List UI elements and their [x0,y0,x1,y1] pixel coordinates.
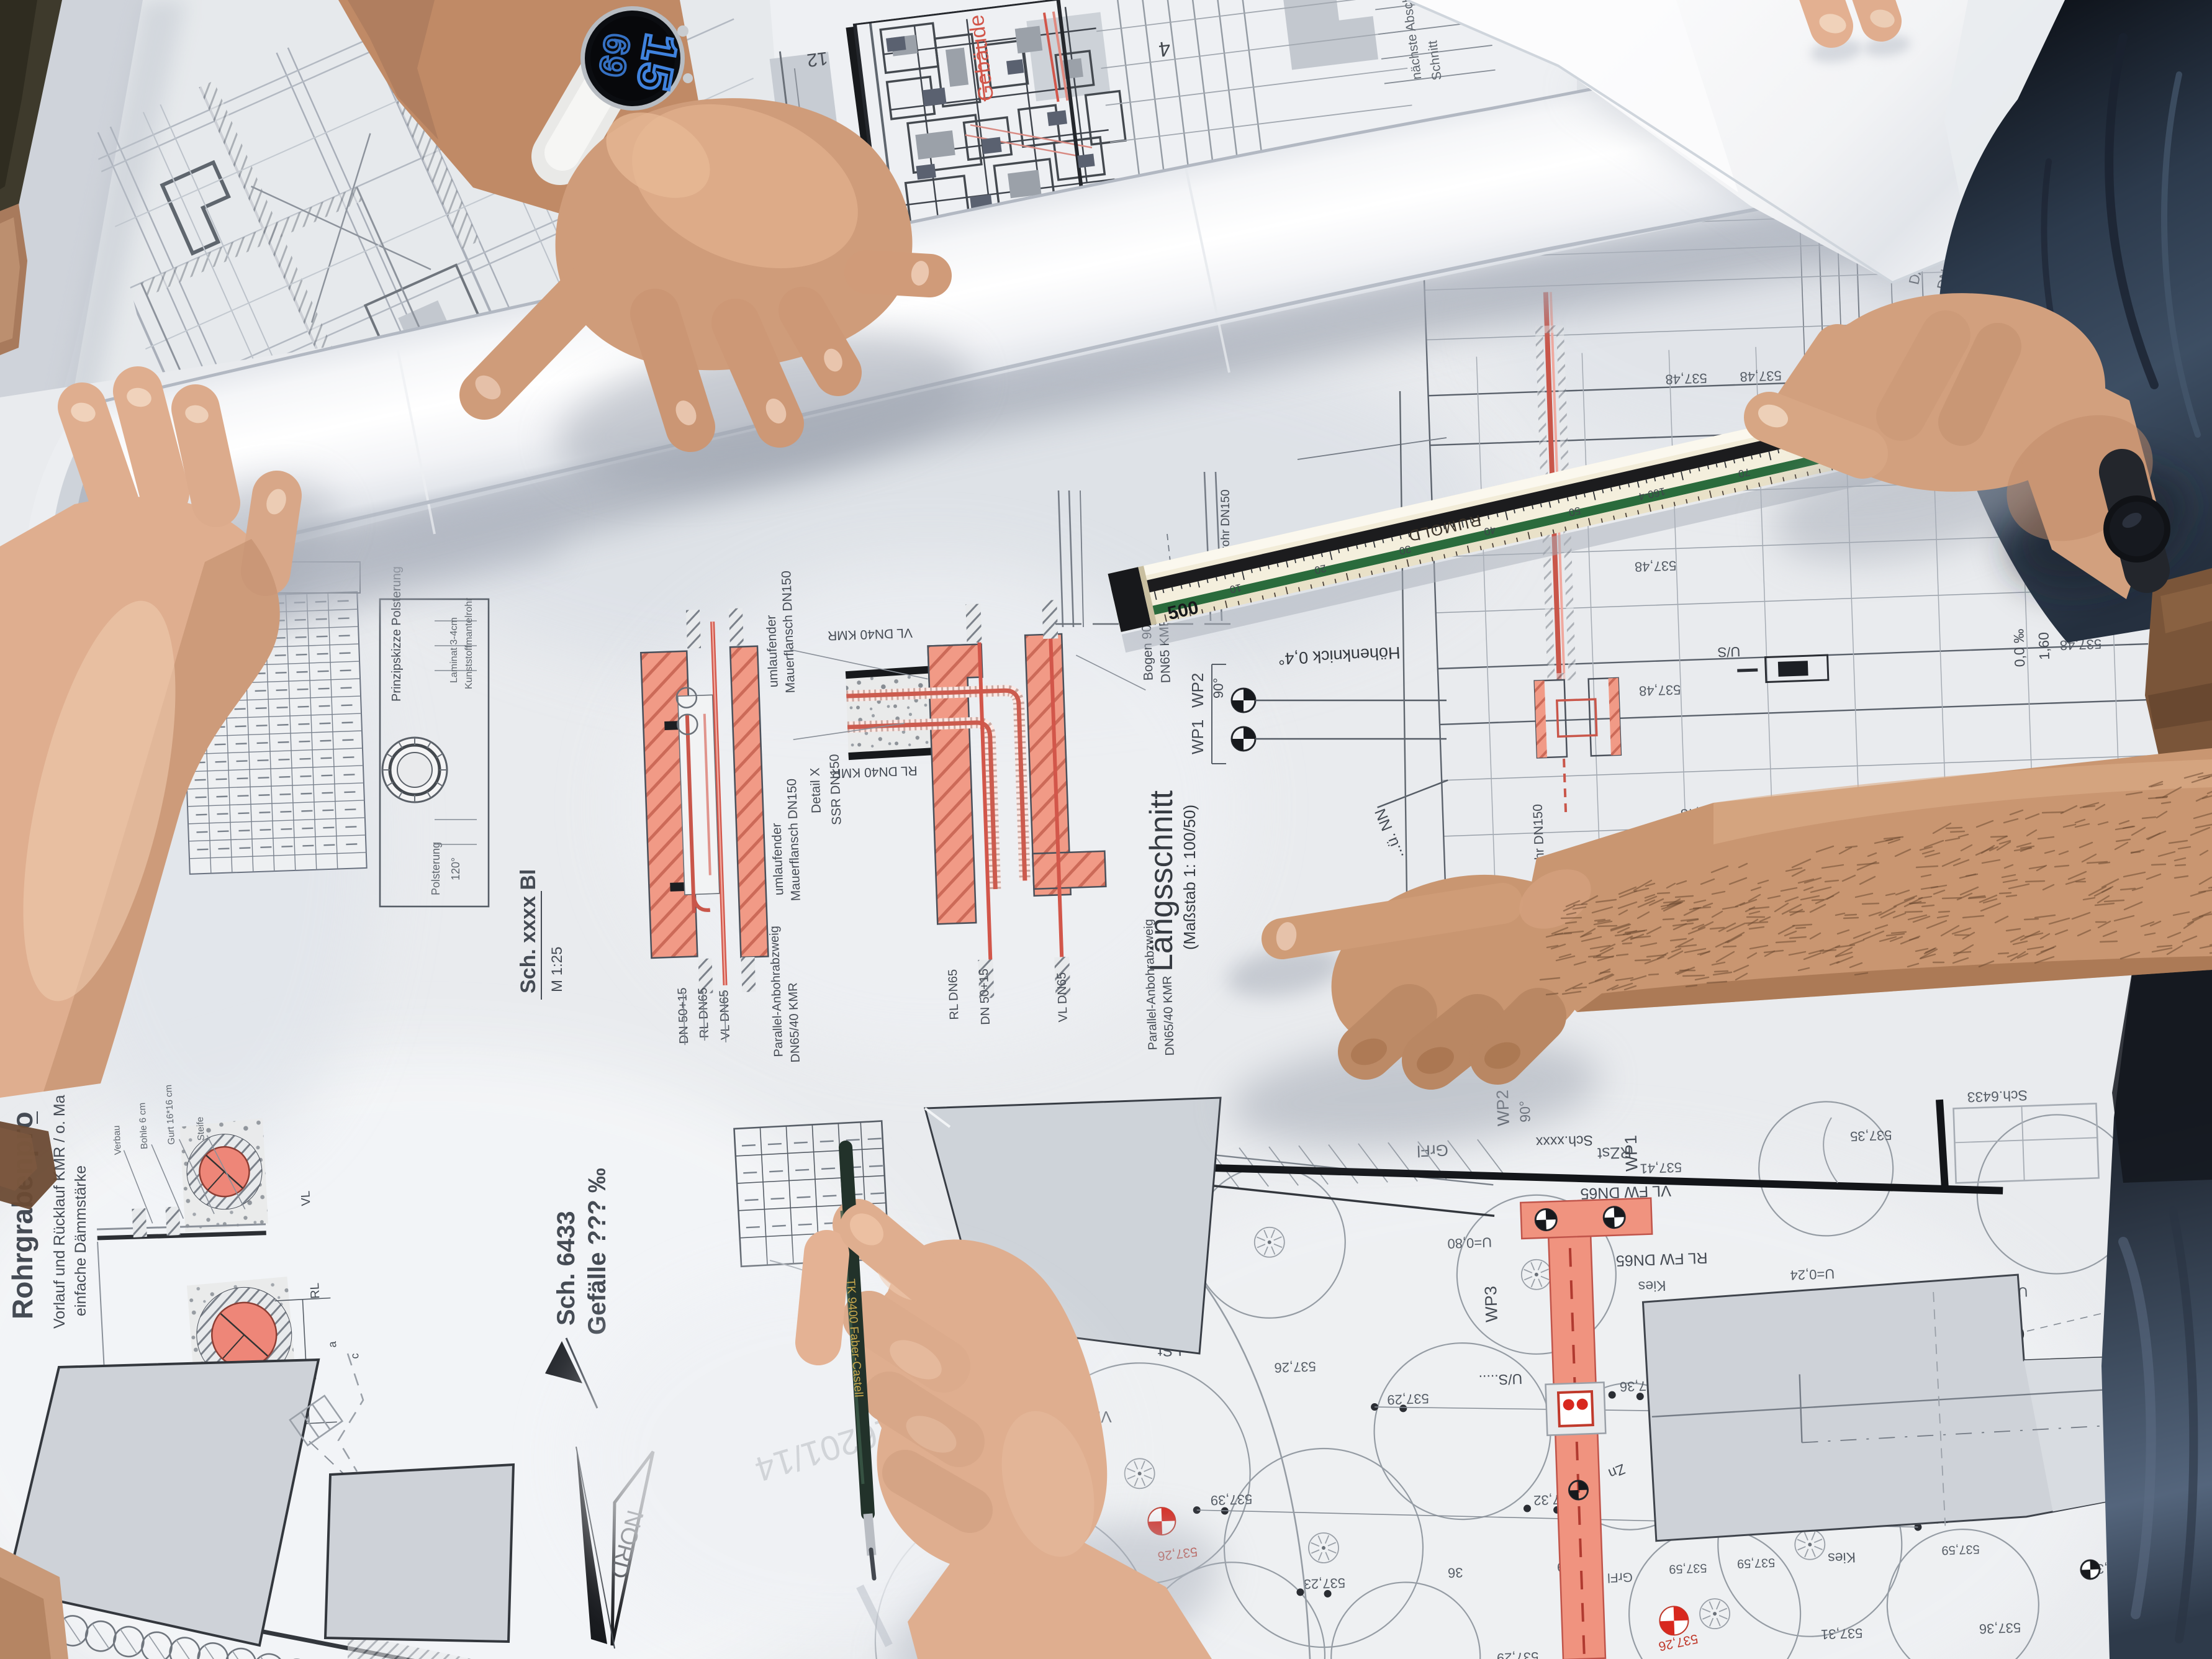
svg-text:umlaufender: umlaufender [769,823,786,895]
svg-text:Polsterung: Polsterung [430,842,442,895]
svg-text:537,29: 537,29 [1387,1391,1429,1408]
svg-text:WP3: WP3 [1481,1286,1501,1323]
svg-text:537,41: 537,41 [1640,1160,1682,1177]
svg-text:DN65/40 KMR: DN65/40 KMR [1160,975,1176,1056]
svg-text:Steife: Steife [195,1116,207,1141]
svg-text:Kunststoffmantelrohr: Kunststoffmantelrohr [464,597,474,689]
svg-text:Laminat 3-4cm: Laminat 3-4cm [449,617,459,683]
svg-text:69: 69 [587,29,636,81]
svg-text:537,35: 537,35 [1850,1128,1892,1144]
svg-text:DN 50+15: DN 50+15 [977,969,993,1025]
svg-text:0,0 ‰: 0,0 ‰ [2010,628,2028,667]
svg-text:RL DN65: RL DN65 [946,969,962,1020]
svg-text:GrFl: GrFl [1607,1570,1633,1584]
svg-text:Längsschnitt: Längsschnitt [1144,790,1180,972]
svg-text:Detail X: Detail X [808,767,824,813]
svg-text:90°: 90° [1211,678,1226,698]
svg-text:537,39: 537,39 [1210,1491,1252,1508]
svg-text:WP1: WP1 [1188,720,1207,754]
svg-text:WP2: WP2 [1188,673,1207,708]
svg-text:537,23: 537,23 [1303,1575,1345,1592]
svg-text:U=0,24: U=0,24 [1790,1266,1835,1283]
svg-text:Sch.6433: Sch.6433 [1967,1087,2028,1105]
svg-text:Verbau: Verbau [111,1125,123,1155]
svg-text:537,48: 537,48 [1635,558,1677,574]
svg-text:Vorlauf und Rücklauf KMR / o.: Vorlauf und Rücklauf KMR / o. Ma [51,1095,68,1329]
svg-text:U/S.....: U/S..... [1478,1371,1522,1388]
svg-text:537,31: 537,31 [1821,1625,1863,1642]
svg-text:120°: 120° [449,857,462,880]
svg-text:Sch. 6433: Sch. 6433 [553,1211,580,1326]
svg-text:U=0,80: U=0,80 [1447,1234,1492,1251]
svg-text:36: 36 [1448,1565,1463,1581]
svg-text:VL FW DN65: VL FW DN65 [1580,1182,1671,1202]
svg-text:DN65/40 KMR: DN65/40 KMR [786,982,802,1063]
svg-text:SSR DN150: SSR DN150 [828,754,844,825]
svg-text:537,48: 537,48 [1665,371,1707,387]
svg-text:537,59: 537,59 [1941,1542,1980,1557]
svg-text:1,60: 1,60 [2035,632,2052,661]
svg-text:einfache Dämmstärke: einfache Dämmstärke [72,1165,89,1316]
svg-text:RL DN40 KMR: RL DN40 KMR [831,763,918,780]
svg-text:537,59: 537,59 [1669,1561,1707,1576]
svg-text:VL: VL [299,1190,313,1206]
svg-text:RL FW DN65: RL FW DN65 [1615,1249,1708,1269]
svg-text:537,29: 537,29 [1497,1649,1539,1659]
svg-text:M 1:25: M 1:25 [549,947,566,992]
svg-text:Kies: Kies [1638,1278,1666,1295]
svg-text:537,36: 537,36 [1979,1620,2021,1637]
svg-text:U/S: U/S [1717,644,1741,660]
svg-text:Sch.xxxx: Sch.xxxx [1535,1132,1593,1150]
svg-text:c: c [348,1353,361,1359]
svg-text:537,48: 537,48 [1639,682,1681,698]
svg-text:RL: RL [308,1283,322,1300]
svg-text:537,48: 537,48 [1740,368,1782,384]
svg-text:537,26: 537,26 [1274,1358,1316,1375]
svg-text:12: 12 [806,48,829,71]
svg-text:Gefälle ??? ‰: Gefälle ??? ‰ [584,1168,611,1335]
svg-text:Sch. xxxx Bl: Sch. xxxx Bl [517,869,540,993]
svg-text:(Maßstab 1: 100/50): (Maßstab 1: 100/50) [1180,805,1199,950]
svg-text:537,59: 537,59 [1737,1555,1776,1570]
svg-text:Kies: Kies [1828,1550,1856,1567]
svg-text:WP1: WP1 [1622,1135,1641,1172]
svg-text:VL DN40 KMR: VL DN40 KMR [828,625,913,643]
svg-text:VL DN65: VL DN65 [1055,972,1070,1023]
svg-text:umlaufender: umlaufender [764,615,781,687]
